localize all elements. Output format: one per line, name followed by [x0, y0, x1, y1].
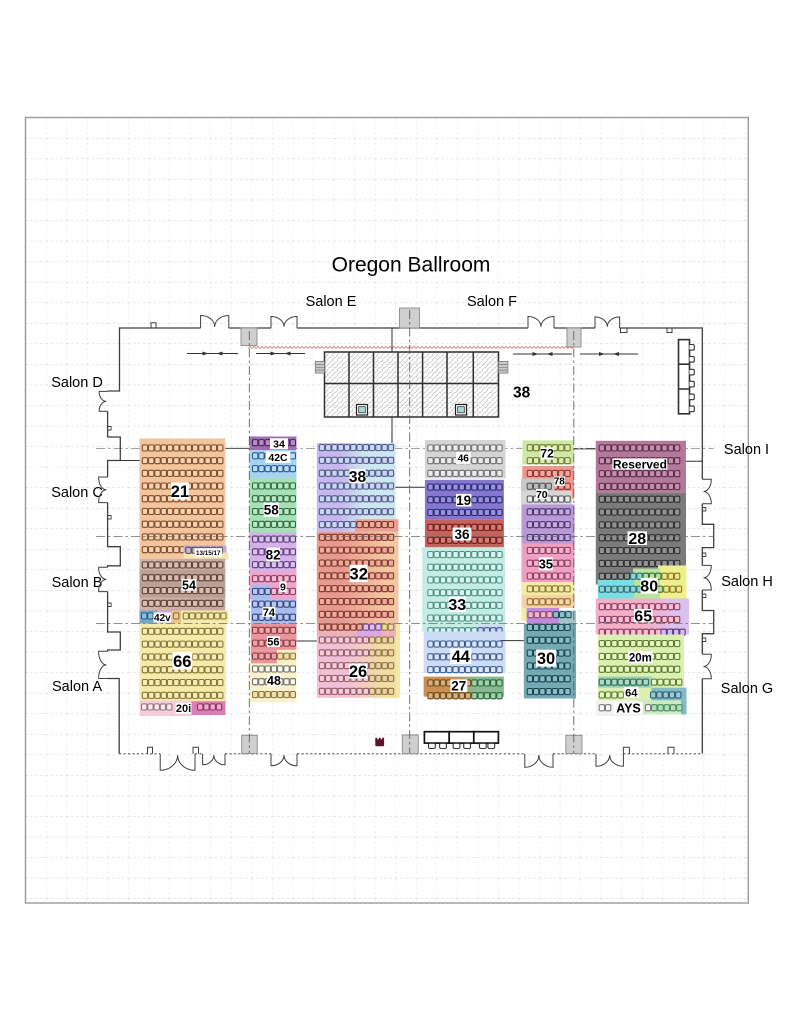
- svg-text:42C: 42C: [268, 452, 288, 464]
- svg-text:48: 48: [267, 674, 281, 688]
- svg-text:66: 66: [173, 653, 191, 671]
- svg-text:Reserved: Reserved: [613, 457, 667, 471]
- svg-text:Salon A: Salon A: [52, 679, 102, 695]
- svg-text:70: 70: [536, 489, 548, 501]
- svg-text:82: 82: [266, 548, 281, 563]
- svg-text:72: 72: [540, 447, 554, 461]
- svg-text:Salon D: Salon D: [51, 375, 103, 391]
- svg-text:58: 58: [264, 503, 280, 518]
- svg-text:28: 28: [628, 531, 646, 548]
- svg-text:Salon F: Salon F: [467, 294, 517, 310]
- svg-text:9: 9: [280, 581, 286, 593]
- svg-text:20m: 20m: [629, 652, 652, 664]
- svg-text:35: 35: [539, 557, 553, 572]
- svg-text:65: 65: [634, 609, 652, 626]
- svg-text:27: 27: [451, 679, 466, 694]
- svg-text:56: 56: [267, 637, 279, 649]
- svg-text:38: 38: [513, 385, 531, 402]
- svg-text:36: 36: [454, 527, 470, 542]
- svg-text:21: 21: [171, 483, 189, 501]
- svg-text:26: 26: [349, 663, 367, 681]
- svg-text:30: 30: [537, 650, 555, 668]
- svg-text:64: 64: [625, 687, 638, 699]
- svg-text:54: 54: [182, 578, 196, 592]
- svg-text:Salon E: Salon E: [306, 294, 357, 310]
- svg-text:80: 80: [640, 579, 658, 596]
- svg-text:44: 44: [452, 648, 471, 666]
- svg-text:Salon C: Salon C: [51, 485, 103, 501]
- svg-text:34: 34: [273, 439, 285, 451]
- svg-text:46: 46: [458, 454, 470, 465]
- svg-text:19: 19: [456, 493, 471, 508]
- svg-text:Salon B: Salon B: [52, 575, 103, 591]
- svg-text:AYS: AYS: [616, 701, 641, 715]
- svg-text:74: 74: [263, 607, 276, 619]
- svg-text:42v: 42v: [154, 613, 171, 624]
- svg-text:Salon H: Salon H: [721, 574, 773, 590]
- svg-text:Salon G: Salon G: [721, 681, 773, 697]
- svg-text:13/15/17: 13/15/17: [196, 550, 221, 557]
- svg-text:Oregon Ballroom: Oregon Ballroom: [332, 254, 491, 277]
- svg-text:32: 32: [350, 565, 368, 583]
- svg-text:78: 78: [554, 477, 566, 488]
- svg-text:33: 33: [448, 597, 466, 614]
- svg-text:20i: 20i: [176, 703, 191, 715]
- svg-text:38: 38: [349, 469, 367, 486]
- svg-text:Salon I: Salon I: [724, 442, 769, 458]
